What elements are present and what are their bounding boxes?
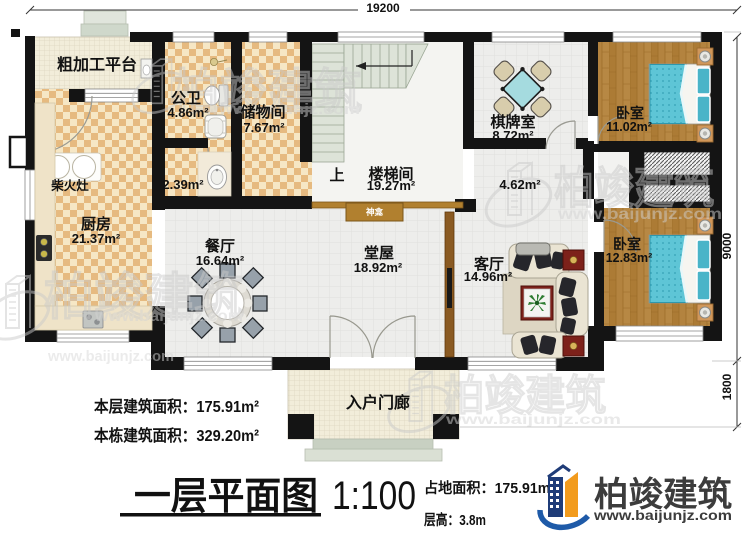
svg-text:1:100: 1:100 (332, 474, 416, 518)
svg-text:1800: 1800 (720, 373, 734, 400)
svg-text:www.baijunjz.com: www.baijunjz.com (593, 507, 732, 523)
svg-text:7.67m²: 7.67m² (243, 120, 285, 135)
svg-text:一层平面图: 一层平面图 (134, 476, 318, 518)
svg-text:9000: 9000 (720, 232, 734, 259)
svg-text:本栋建筑面积：329.20m²: 本栋建筑面积：329.20m² (94, 426, 259, 445)
svg-text:www.baijunjz.com: www.baijunjz.com (47, 349, 174, 365)
svg-text:www.baijunjz.com: www.baijunjz.com (94, 308, 243, 325)
svg-text:19200: 19200 (366, 1, 400, 15)
svg-text:11.02m²: 11.02m² (606, 120, 652, 134)
svg-text:4.86m²: 4.86m² (167, 105, 209, 120)
svg-text:14.96m²: 14.96m² (464, 269, 513, 284)
svg-text:18.92m²: 18.92m² (354, 260, 403, 275)
svg-text:占地面积：175.91m²: 占地面积：175.91m² (424, 479, 555, 497)
svg-text:www.baijunjz.com: www.baijunjz.com (445, 411, 621, 427)
svg-text:本层建筑面积：175.91m²: 本层建筑面积：175.91m² (94, 397, 259, 416)
svg-text:柴火灶: 柴火灶 (50, 178, 89, 193)
svg-text:层高：3.8m: 层高：3.8m (424, 511, 486, 529)
svg-text:粗加工平台: 粗加工平台 (57, 55, 137, 74)
svg-text:16.64m²: 16.64m² (196, 253, 245, 268)
svg-text:储物间: 储物间 (240, 103, 285, 121)
svg-text:卧室: 卧室 (616, 105, 644, 121)
svg-text:2.39m²: 2.39m² (162, 177, 204, 192)
svg-text:入户门廊: 入户门廊 (346, 393, 410, 412)
svg-text:卧室: 卧室 (613, 236, 641, 252)
svg-text:12.83m²: 12.83m² (606, 251, 653, 265)
svg-text:4.62m²: 4.62m² (499, 177, 541, 192)
svg-text:上: 上 (329, 167, 344, 184)
svg-text:神龛: 神龛 (366, 207, 384, 217)
svg-text:19.27m²: 19.27m² (367, 178, 416, 193)
svg-text:21.37m²: 21.37m² (72, 231, 121, 246)
svg-text:www.baijunjz.com: www.baijunjz.com (557, 206, 722, 223)
svg-text:8.72m²: 8.72m² (492, 128, 534, 143)
